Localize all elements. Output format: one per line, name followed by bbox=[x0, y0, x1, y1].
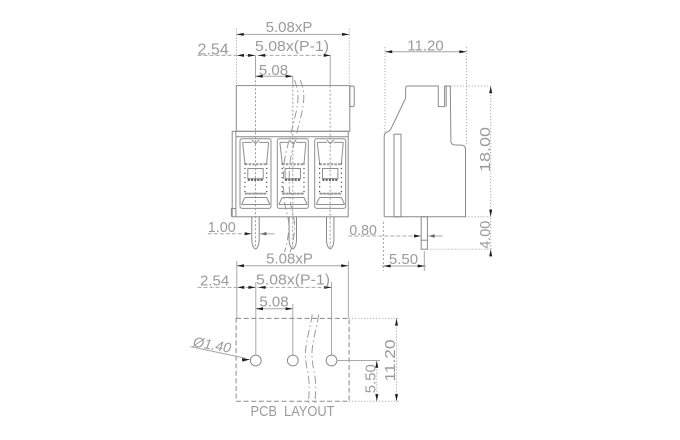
svg-text:5.08: 5.08 bbox=[259, 294, 288, 311]
svg-text:5.08x(P-1): 5.08x(P-1) bbox=[256, 272, 330, 289]
svg-text:1.00: 1.00 bbox=[208, 219, 236, 236]
svg-text:11.20: 11.20 bbox=[382, 340, 399, 382]
svg-text:0.80: 0.80 bbox=[349, 222, 377, 239]
svg-text:5.08xP: 5.08xP bbox=[266, 250, 313, 267]
svg-text:2.54: 2.54 bbox=[198, 41, 229, 58]
svg-text:5.08x(P-1): 5.08x(P-1) bbox=[255, 38, 329, 55]
svg-text:2.54: 2.54 bbox=[200, 273, 229, 290]
svg-text:PCB LAYOUT: PCB LAYOUT bbox=[251, 403, 335, 420]
svg-text:5.50: 5.50 bbox=[362, 364, 379, 393]
svg-text:4.00: 4.00 bbox=[477, 221, 494, 249]
svg-text:5.08: 5.08 bbox=[259, 62, 288, 79]
svg-text:5.08xP: 5.08xP bbox=[266, 19, 313, 36]
svg-text:18.00: 18.00 bbox=[477, 127, 494, 172]
svg-text:5.50: 5.50 bbox=[389, 251, 418, 268]
svg-text:11.20: 11.20 bbox=[407, 37, 443, 54]
